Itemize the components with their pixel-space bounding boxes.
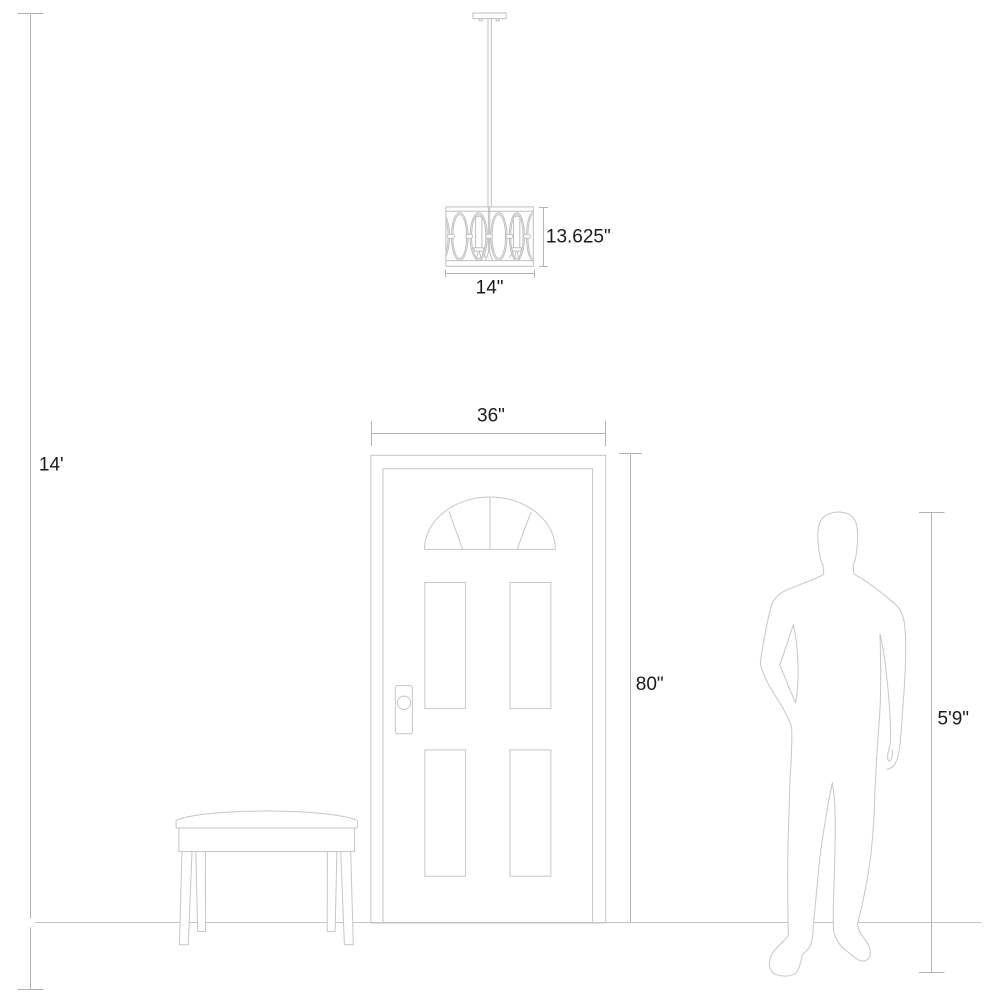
svg-text:13.625": 13.625" [546,227,611,248]
svg-text:14': 14' [39,455,64,476]
svg-text:36": 36" [477,406,505,427]
svg-text:80": 80" [636,674,664,695]
svg-text:5'9": 5'9" [938,708,970,729]
svg-text:14": 14" [476,277,504,298]
